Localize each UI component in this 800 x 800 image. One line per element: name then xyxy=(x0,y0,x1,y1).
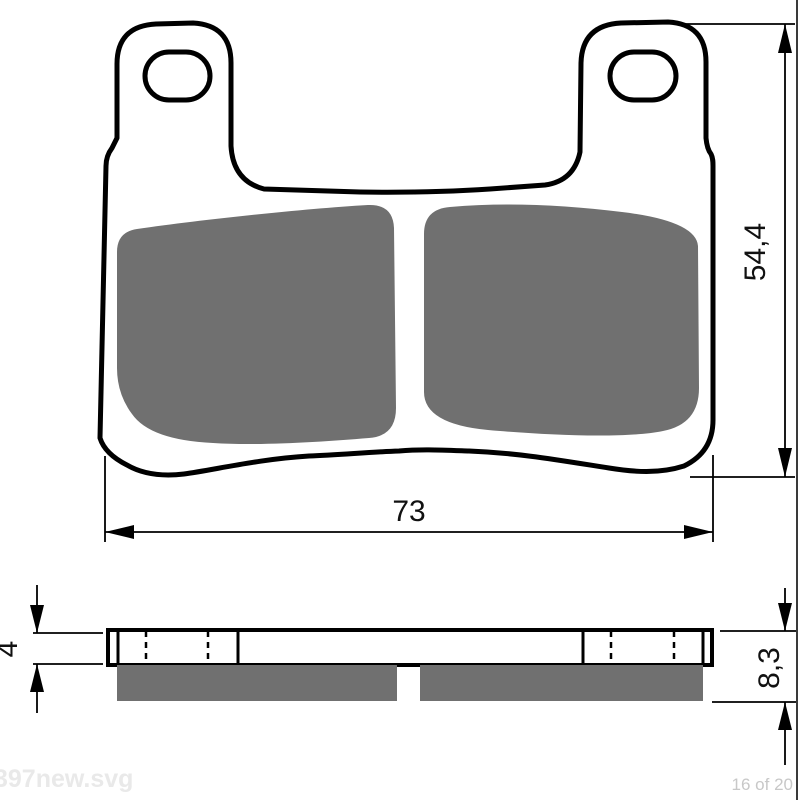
dimension-total-thickness: 8,3 xyxy=(712,588,796,765)
arrow-left-icon xyxy=(105,525,134,539)
mounting-hole-right xyxy=(610,52,676,100)
dimension-label-width: 73 xyxy=(392,495,425,528)
watermark-page-count: 16 of 20 xyxy=(732,775,793,794)
drawing-page: 54,4 73 xyxy=(0,0,800,800)
friction-side-right xyxy=(420,665,703,701)
friction-pad-right xyxy=(424,205,699,436)
mounting-hole-left xyxy=(145,52,210,100)
brake-pad-drawing: 54,4 73 xyxy=(0,0,800,800)
arrow-down-icon xyxy=(778,448,792,477)
arrow-down-icon xyxy=(778,603,792,631)
side-view xyxy=(108,630,712,701)
arrow-up-icon xyxy=(778,702,792,730)
backplate-side xyxy=(108,630,712,665)
dimension-plate-thickness: 4 xyxy=(0,585,103,713)
friction-pad-left xyxy=(117,205,396,444)
watermark-filename: 397new.svg xyxy=(0,765,133,793)
friction-side-left xyxy=(117,665,397,701)
dimension-label-total-thickness: 8,3 xyxy=(753,647,786,689)
dimension-label-plate-thickness: 4 xyxy=(0,641,24,658)
arrow-down-icon xyxy=(30,605,44,633)
arrow-up-icon xyxy=(30,664,44,692)
arrow-up-icon xyxy=(778,24,792,53)
top-view xyxy=(100,22,713,475)
arrow-right-icon xyxy=(684,525,713,539)
dimension-label-height: 54,4 xyxy=(739,223,772,281)
